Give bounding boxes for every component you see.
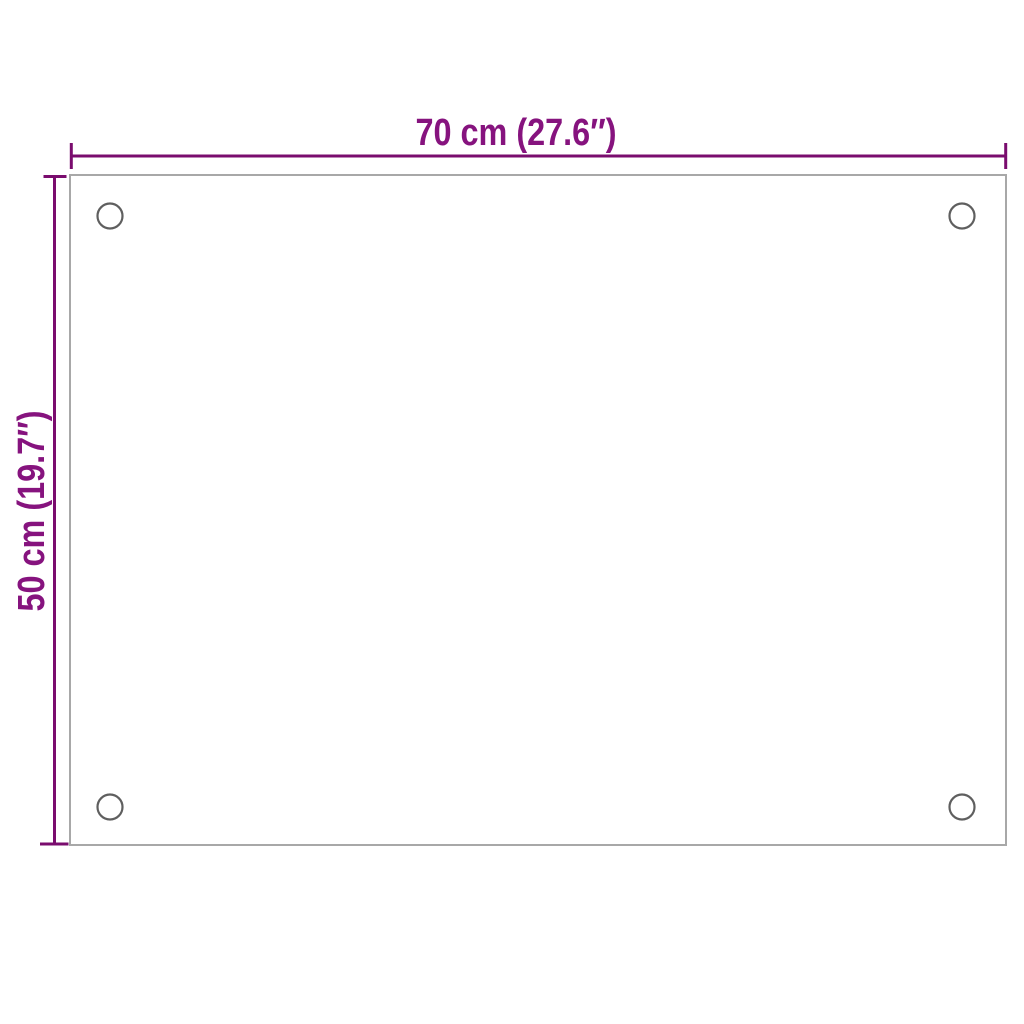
svg-text:50 cm (19.7″): 50 cm (19.7″) — [11, 411, 53, 612]
svg-text:70 cm (27.6″): 70 cm (27.6″) — [416, 112, 617, 154]
